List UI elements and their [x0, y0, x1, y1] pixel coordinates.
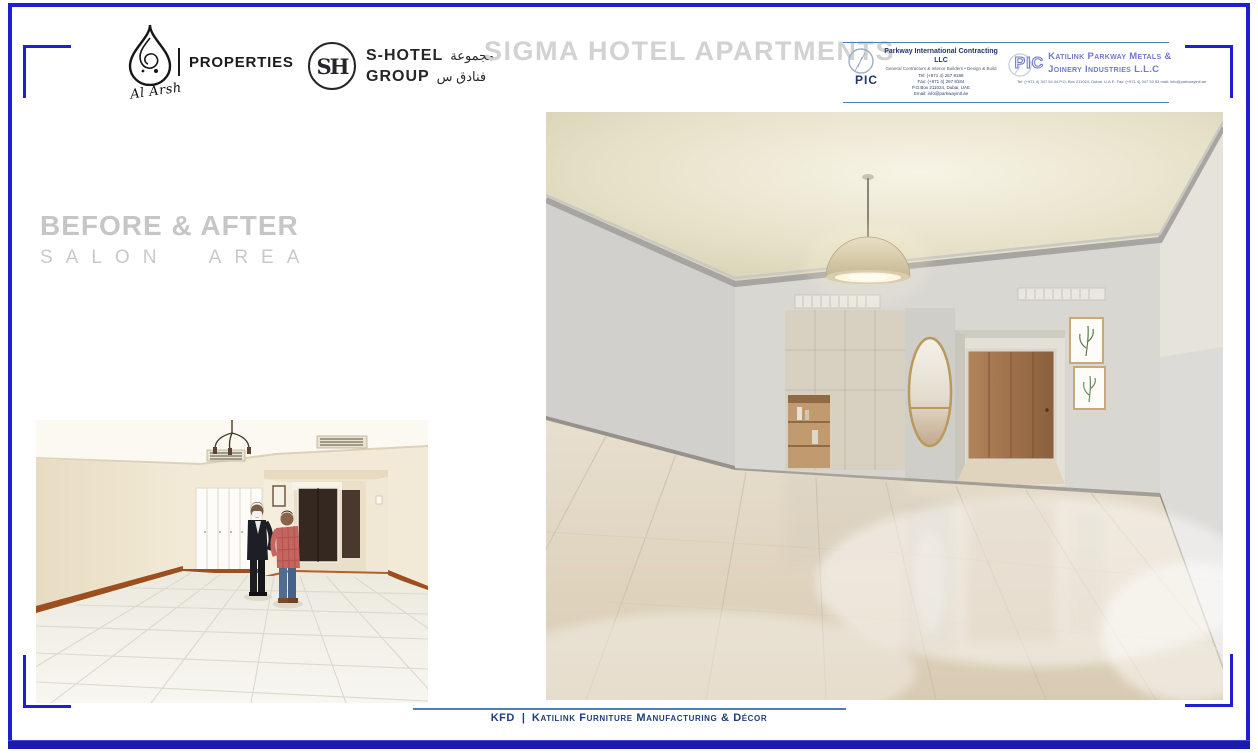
footer-separator: | — [522, 712, 525, 724]
footer-divider — [413, 708, 846, 710]
katilink-line2: Joinery Industries L.L.C — [1048, 64, 1171, 77]
before-picture-frame — [273, 486, 285, 506]
frame-top-border — [8, 3, 1250, 7]
corner-accent-top-right — [1185, 45, 1233, 98]
s-hotel-monogram-icon: SH — [308, 42, 356, 90]
footer-text: Katilink Furniture Manufacturing & Décor — [532, 712, 767, 724]
s-hotel-line2: GROUP — [366, 66, 430, 87]
before-ac-vent-left — [207, 450, 245, 461]
parkway-name: Parkway International Contracting LLC — [881, 47, 1001, 65]
parkway-logo: PIC Parkway International Contracting LL… — [845, 47, 1001, 97]
before-photo — [36, 420, 428, 703]
pic-sketch-icon — [1007, 51, 1033, 81]
before-after-heading: BEFORE & AFTER — [40, 210, 312, 242]
page-title: SIGMA HOTEL APARTMENTS — [484, 36, 895, 67]
before-ac-vent-right — [317, 436, 367, 448]
katilink-line1: Katilink Parkway Metals & — [1048, 51, 1171, 64]
divider — [178, 48, 180, 76]
after-cabinets — [785, 310, 905, 470]
after-botanical-frame-2 — [1074, 367, 1105, 409]
frame-left-border — [8, 3, 12, 745]
frame-bottom-bar — [8, 740, 1250, 749]
parkway-text: Parkway International Contracting LLC Ge… — [881, 47, 1001, 97]
katilink-logo: PIC Katilink Parkway Metals & Joinery In… — [1007, 47, 1165, 97]
after-shelf-niche — [788, 395, 830, 468]
parkway-contact: Tel: (+971 4) 267 8188 Fax: (+971 4) 267… — [881, 73, 1001, 96]
s-hotel-line1: S-HOTEL — [366, 45, 443, 66]
slide: Al Arsh PROPERTIES SH S-HOTEL مجموعة GRO… — [0, 0, 1258, 753]
salon-area-subheading: SALON AREA — [40, 247, 312, 269]
s-hotel-name: S-HOTEL مجموعة GROUP فنادق س — [366, 45, 495, 87]
after-oval-mirror — [905, 308, 955, 484]
after-hallway — [955, 330, 1065, 486]
al-arsh-drop-icon — [128, 24, 172, 86]
katilink-name: PIC Katilink Parkway Metals & Joinery In… — [1021, 51, 1165, 77]
after-botanical-frame-1 — [1070, 318, 1103, 363]
after-photo — [546, 112, 1223, 700]
section-heading: BEFORE & AFTER SALON AREA — [40, 210, 312, 269]
parkway-tagline: General Contractors & Interior Builders … — [881, 66, 1001, 71]
s-hotel-arabic2: فنادق س — [437, 66, 486, 87]
monogram-letters: SH — [316, 54, 347, 79]
properties-label: PROPERTIES — [189, 54, 294, 71]
parkway-abbr: PIC — [855, 73, 878, 87]
corner-accent-top-left — [23, 45, 71, 98]
pic-roundel-icon: PIC — [845, 47, 877, 89]
s-hotel-logo: SH S-HOTEL مجموعة GROUP فنادق س — [308, 42, 495, 90]
footer: KFD|Katilink Furniture Manufacturing & D… — [0, 712, 1258, 724]
partner-logos: PIC Parkway International Contracting LL… — [843, 42, 1169, 103]
al-arsh-division: PROPERTIES — [178, 48, 294, 76]
parkway-email: Email: info@parkwayintl.ae — [881, 91, 1001, 97]
katilink-contact: Tel: (+971 4) 347 54 44 P.O. Box 211024,… — [1017, 79, 1165, 84]
al-arsh-logo: Al Arsh PROPERTIES — [126, 20, 286, 108]
frame-right-border — [1246, 3, 1250, 745]
after-ac-vent-right — [1018, 288, 1105, 300]
footer-brand: KFD — [491, 712, 515, 724]
